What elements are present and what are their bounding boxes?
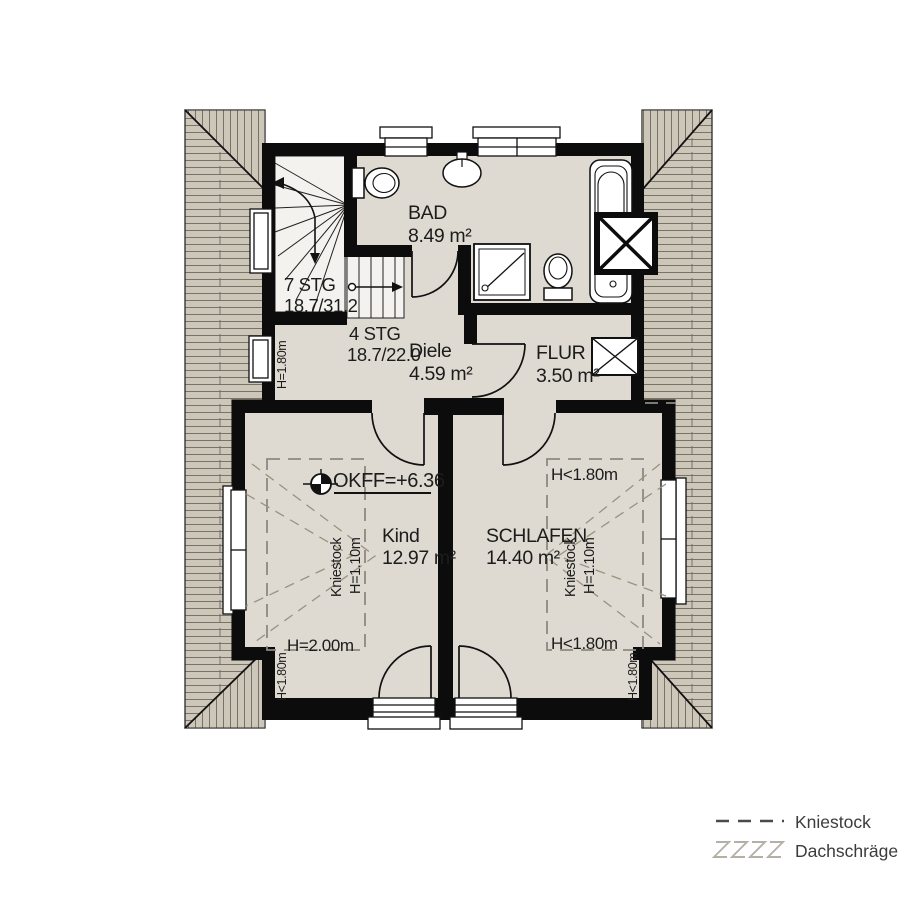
room-area-kind: 12.97 m² [382,547,457,569]
window-schlafen-east [661,478,686,604]
height-lt180-schlafen-top: H<1.80m [551,465,618,484]
window-stairwell-west [250,209,272,273]
window-top-right [473,127,560,156]
legend-dachschraege-label: Dachschräge [795,841,898,861]
shower [474,244,530,300]
window-schlafen-south [450,698,522,729]
window-kind-south [368,698,440,729]
chimney-icon [597,215,655,272]
floor-plan-page: BAD 8.49 m² 7 STG 18.7/31.2 4 STG 18.7/2… [0,0,917,900]
legend-kniestock-label: Kniestock [795,812,871,832]
toilet-lower [544,254,572,300]
kniestock-height-schlafen: H=1.10m [582,537,598,594]
room-label-diele: Diele [409,340,451,362]
room-area-flur: 3.50 m² [536,365,600,387]
room-area-bad: 8.49 m² [408,225,472,247]
legend: Kniestock Dachschräge [714,812,898,861]
kniestock-label-schlafen: Kniestock [563,537,579,597]
height-200-label: H=2.00m [287,636,354,655]
room-area-diele: 4.59 m² [409,363,473,385]
room-label-bad: BAD [408,202,447,224]
room-area-schlafen: 14.40 m² [486,547,561,569]
toilet-upper [352,168,399,198]
kniestock-height-kind: H=1.10m [348,537,364,594]
window-top-left [380,127,432,156]
stairs-upper-dimensions: 18.7/31.2 [284,295,358,316]
window-diele-west [249,336,272,382]
stairs-lower-label: 4 STG [349,323,400,344]
legend-dachschraege-hatch [714,842,783,857]
room-label-flur: FLUR [536,342,586,364]
height-lt180-east: H<1.80m [626,653,640,701]
height-lt180-schlafen-bottom: H<1.80m [551,634,618,653]
height-eq180-west: H=1.80m [275,341,289,389]
stairs-upper-label: 7 STG [284,274,335,295]
floor-plan-drawing: BAD 8.49 m² 7 STG 18.7/31.2 4 STG 18.7/2… [0,0,917,900]
window-kind-west [223,486,246,614]
height-lt180-west: H<1.80m [275,653,289,701]
room-label-kind: Kind [382,525,419,547]
kniestock-label-kind: Kniestock [329,537,345,597]
level-annotation: OKFF=+6.36 [333,470,445,492]
